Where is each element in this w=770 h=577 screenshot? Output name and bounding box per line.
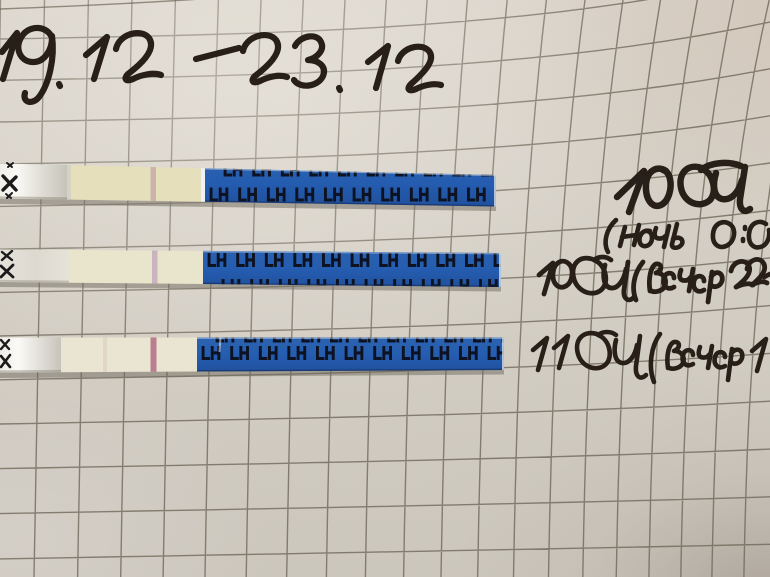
svg-text:LH: LH [207,251,227,271]
svg-text:LH: LH [230,344,250,364]
svg-text:LH: LH [350,251,370,271]
svg-text:LH: LH [401,344,421,364]
svg-text:LH: LH [430,344,450,364]
svg-text:LH: LH [373,344,393,364]
svg-text:LH: LH [466,185,486,205]
svg-text:LH: LH [287,344,307,364]
svg-text:LH: LH [321,251,341,271]
svg-text:LH: LH [409,185,429,205]
svg-text:LH: LH [438,185,458,205]
svg-text:LH: LH [236,251,256,271]
svg-text:LH: LH [201,344,221,364]
svg-text:LH: LH [258,344,278,364]
svg-text:LH: LH [315,344,335,364]
svg-text:LH: LH [352,185,372,205]
svg-text:LH: LH [323,185,343,205]
svg-text:LH: LH [264,251,284,271]
svg-text:LH: LH [344,344,364,364]
svg-text:LH: LH [293,251,313,271]
svg-text:LH: LH [295,185,315,205]
svg-text:LH: LH [381,185,401,205]
svg-text:LH: LH [458,344,478,364]
